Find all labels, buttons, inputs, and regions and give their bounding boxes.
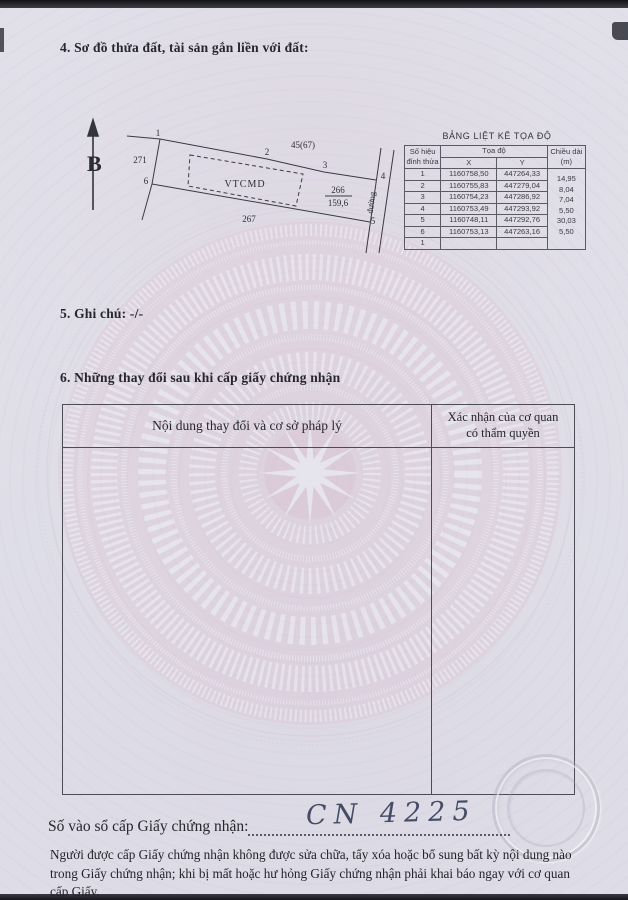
- parcel-top-boundary: [127, 136, 376, 180]
- north-arrow-head: [88, 120, 98, 136]
- adjacent-parcel-bottom: 267: [242, 214, 256, 224]
- section5-heading: 5. Ghi chú: -/-: [60, 306, 143, 322]
- changes-table-header: Nội dung thay đổi và cơ sở pháp lý Xác n…: [63, 405, 574, 448]
- road-line-right: [379, 150, 394, 253]
- house-label: VTCMD: [224, 179, 265, 190]
- vertex-label-5: 5: [371, 216, 376, 226]
- col-header-y: Y: [497, 157, 547, 169]
- photo-corner-mark: [612, 22, 628, 40]
- adjacent-parcel-top: 45(67): [291, 140, 315, 150]
- section6-heading: 6. Những thay đổi sau khi cấp giấy chứng…: [60, 370, 340, 386]
- length-column: 14,95 8,04 7,04 5,50 30,03 5,50: [547, 169, 585, 250]
- section4-heading: 4. Sơ đồ thửa đất, tài sản gắn liền với …: [60, 40, 309, 56]
- coordinate-table-title: BẢNG LIỆT KÊ TỌA ĐỘ: [404, 131, 590, 141]
- vertex-label-2: 2: [265, 147, 270, 157]
- parcel-number: 266: [331, 185, 345, 195]
- register-line: Số vào sổ cấp Giấy chứng nhận:CN 4225: [48, 812, 510, 836]
- col-header-x: X: [441, 157, 497, 169]
- vertex-label-3: 3: [323, 160, 328, 170]
- changes-col1-cell: [63, 448, 432, 794]
- changes-table-body: [63, 448, 574, 794]
- vertex-label-4: 4: [381, 171, 386, 181]
- register-number-handwritten: CN 4225: [306, 796, 477, 831]
- vertex-label-1: 1: [156, 128, 161, 138]
- col-header-vertex: Số hiệu đỉnh thửa: [405, 146, 441, 169]
- photo-edge-top: [0, 0, 628, 8]
- coordinate-table: Số hiệu đỉnh thửa Tọa độ Chiều dài (m) X…: [404, 145, 586, 250]
- col-header-coords: Tọa độ: [441, 146, 548, 158]
- changes-table: Nội dung thay đổi và cơ sở pháp lý Xác n…: [62, 404, 575, 795]
- parcel-area: 159,6: [328, 198, 349, 208]
- photo-left-mark: [0, 28, 4, 52]
- adjacent-parcel-left: 271: [133, 155, 147, 165]
- changes-col1-header: Nội dung thay đổi và cơ sở pháp lý: [63, 405, 432, 447]
- col-header-length: Chiều dài (m): [547, 146, 585, 169]
- section5-note-value: -/-: [130, 306, 143, 321]
- north-label: B: [87, 151, 102, 176]
- register-dotted-line: CN 4225: [248, 812, 510, 836]
- road-label: đường: [365, 190, 378, 214]
- parcel-diagram: B 1 2 3 4 5 6 271 45(67) 267 VTCMD 266 1…: [60, 108, 410, 273]
- footer-notice: Người được cấp Giấy chứng nhận không đượ…: [50, 846, 584, 900]
- register-label: Số vào sổ cấp Giấy chứng nhận:: [48, 818, 248, 835]
- coord-row: 11160758,50447264,33 14,95 8,04 7,04 5,5…: [405, 169, 586, 181]
- vertex-label-6: 6: [144, 176, 149, 186]
- changes-col2-cell: [432, 448, 574, 794]
- certificate-back-page: 4. Sơ đồ thửa đất, tài sản gắn liền với …: [0, 0, 628, 900]
- coordinate-table-block: BẢNG LIỆT KÊ TỌA ĐỘ Số hiệu đỉnh thửa Tọ…: [404, 131, 590, 250]
- changes-col2-header: Xác nhận của cơ quan có thẩm quyền: [432, 405, 574, 447]
